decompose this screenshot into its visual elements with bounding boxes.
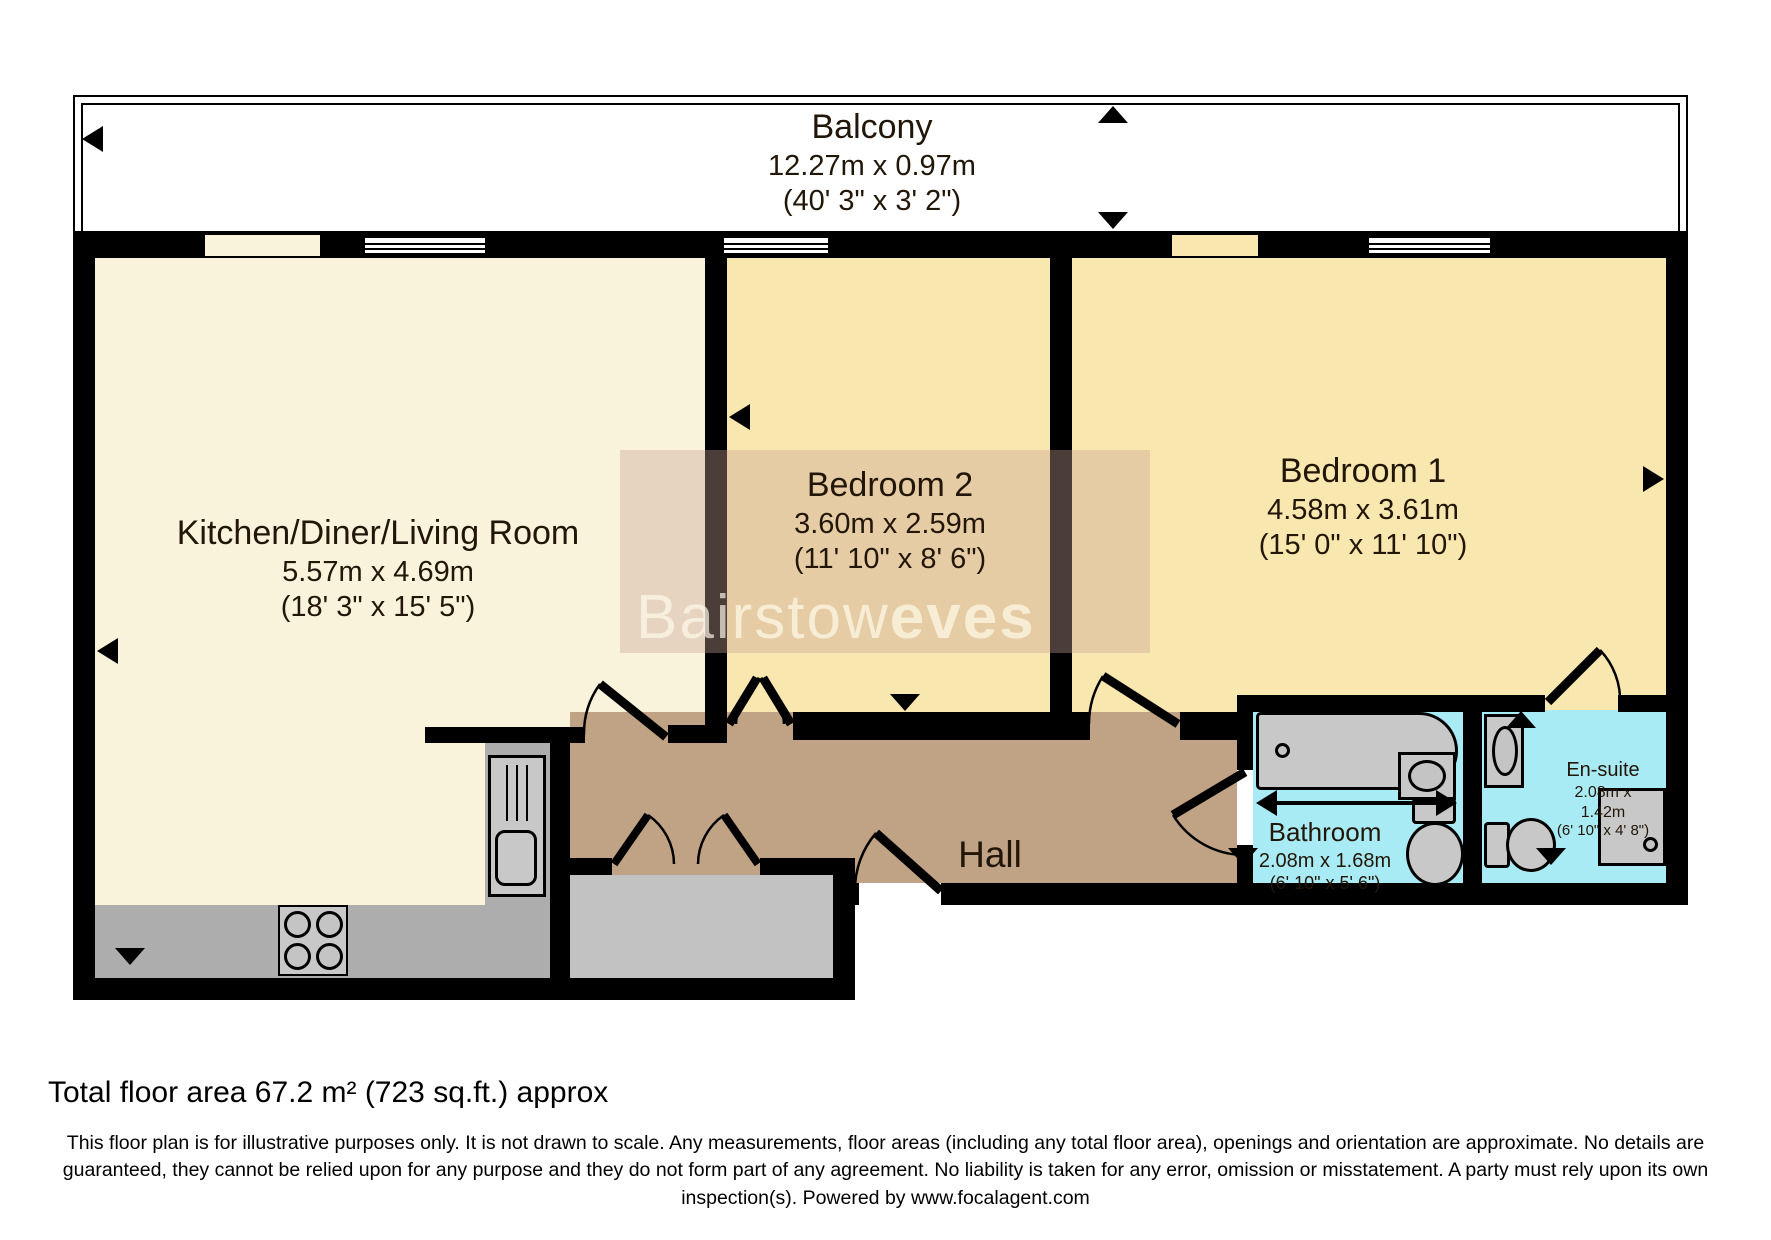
balcony-door-opening-bedroom1 xyxy=(1172,235,1258,256)
bedroom2-metric: 3.60m x 2.59m xyxy=(794,507,986,542)
stove-burner xyxy=(284,911,311,938)
marker-down-icon xyxy=(1228,848,1258,865)
window-bedroom2 xyxy=(722,236,830,255)
stove xyxy=(278,905,348,976)
window-bedroom1 xyxy=(1367,236,1492,255)
bathroom-label: Bathroom 2.08m x 1.68m (6' 10" x 5' 6") xyxy=(1259,816,1391,895)
marker-left-icon xyxy=(729,404,750,430)
bathroom-toilet-bowl xyxy=(1406,822,1464,886)
dimension-arrow-left-icon xyxy=(1256,790,1277,816)
bedroom1-imperial: (15' 0" x 11' 10") xyxy=(1259,528,1467,563)
sink-basin xyxy=(495,830,537,886)
kitchen-label: Kitchen/Diner/Living Room 5.57m x 4.69m … xyxy=(177,512,580,625)
kitchen-metric: 5.57m x 4.69m xyxy=(177,555,580,590)
balcony-name: Balcony xyxy=(768,106,976,149)
marker-left-icon xyxy=(82,126,103,152)
wall-kitchen-hall xyxy=(425,727,585,743)
kitchen-name: Kitchen/Diner/Living Room xyxy=(177,512,580,555)
bathroom-sink-bowl xyxy=(1408,760,1446,792)
bedroom1-metric: 4.58m x 3.61m xyxy=(1259,493,1467,528)
bathtub-faucet xyxy=(1275,743,1290,758)
watermark-part2: eves xyxy=(890,583,1036,652)
ensuite-imperial: (6' 10" x 4' 8") xyxy=(1557,822,1649,840)
wall-closet-left xyxy=(550,743,570,978)
bedroom1-name: Bedroom 1 xyxy=(1259,450,1467,493)
marker-up-icon xyxy=(1389,697,1419,714)
marker-down-icon xyxy=(1098,212,1128,229)
bedroom2-name: Bedroom 2 xyxy=(794,464,986,507)
marker-down-icon xyxy=(890,694,920,711)
marker-right-icon xyxy=(1051,400,1072,426)
marker-up-icon xyxy=(842,240,872,257)
wall-bath-ensuite-divider xyxy=(1463,695,1482,883)
balcony-door-opening-kitchen xyxy=(205,235,320,256)
bedroom2-label: Bedroom 2 3.60m x 2.59m (11' 10" x 8' 6"… xyxy=(794,464,986,577)
ensuite-metric-2: 1.42m xyxy=(1557,803,1649,823)
wall-bedroom2-bottom xyxy=(793,712,1072,740)
wall-step xyxy=(833,858,855,1000)
hall-label: Hall xyxy=(958,834,1022,876)
wall-bedroom1-bottom-a xyxy=(1072,712,1090,740)
wall-kitchen-door-post xyxy=(668,725,705,743)
balcony-label: Balcony 12.27m x 0.97m (40' 3" x 3' 2") xyxy=(768,106,976,219)
balcony-imperial: (40' 3" x 3' 2") xyxy=(768,184,976,219)
marker-right-icon xyxy=(1643,466,1664,492)
marker-up-icon xyxy=(1506,711,1536,728)
bathroom-imperial: (6' 10" x 5' 6") xyxy=(1259,873,1391,895)
watermark-text: Bairstoweves xyxy=(636,582,1036,653)
bathroom-metric: 2.08m x 1.68m xyxy=(1259,849,1391,873)
wall-bathroom-top-b xyxy=(1618,695,1666,712)
kitchen-imperial: (18' 3" x 15' 5") xyxy=(177,590,580,625)
sink-drainer-lines xyxy=(498,765,536,821)
marker-down-icon xyxy=(115,948,145,965)
hall-name: Hall xyxy=(958,834,1022,876)
kitchen-sink xyxy=(488,755,546,897)
floorplan-canvas: Bairstoweves xyxy=(0,0,1771,1240)
window-kitchen xyxy=(363,236,487,255)
wall-bottom-left xyxy=(73,978,855,1000)
bathroom-name: Bathroom xyxy=(1259,816,1391,849)
storage-closet-floor xyxy=(570,875,833,978)
wall-bathroom-left-a xyxy=(1237,710,1253,770)
wall-closet-top-a xyxy=(570,858,612,875)
marker-left-icon xyxy=(97,638,118,664)
marker-down-icon xyxy=(1536,848,1566,865)
total-floor-area: Total floor area 67.2 m² (723 sq.ft.) ap… xyxy=(48,1076,608,1110)
stove-burner xyxy=(316,943,343,970)
watermark-part1: Bairstow xyxy=(636,583,890,652)
marker-up-icon xyxy=(1098,106,1128,123)
disclaimer-text: This floor plan is for illustrative purp… xyxy=(23,1130,1748,1212)
wall-closet-top-b xyxy=(760,858,833,875)
dimension-arrow-right-icon xyxy=(1436,790,1457,816)
dimension-arrow-line xyxy=(1262,801,1452,805)
balcony-metric: 12.27m x 0.97m xyxy=(768,149,976,184)
ensuite-metric-1: 2.08m x xyxy=(1557,783,1649,803)
ensuite-sink-bowl xyxy=(1492,726,1518,776)
ensuite-name: En-suite xyxy=(1557,758,1649,783)
wall-left xyxy=(73,233,95,1000)
bedroom1-label: Bedroom 1 4.58m x 3.61m (15' 0" x 11' 10… xyxy=(1259,450,1467,563)
stove-burner xyxy=(284,943,311,970)
stove-burner xyxy=(316,911,343,938)
wall-bedroom1-bottom-b xyxy=(1180,712,1237,740)
wall-right xyxy=(1666,233,1688,905)
wall-bottom-right-a xyxy=(833,883,859,905)
ensuite-label: En-suite 2.08m x 1.42m (6' 10" x 4' 8") xyxy=(1557,758,1649,840)
marker-up-icon xyxy=(100,240,130,257)
bedroom2-imperial: (11' 10" x 8' 6") xyxy=(794,542,986,577)
